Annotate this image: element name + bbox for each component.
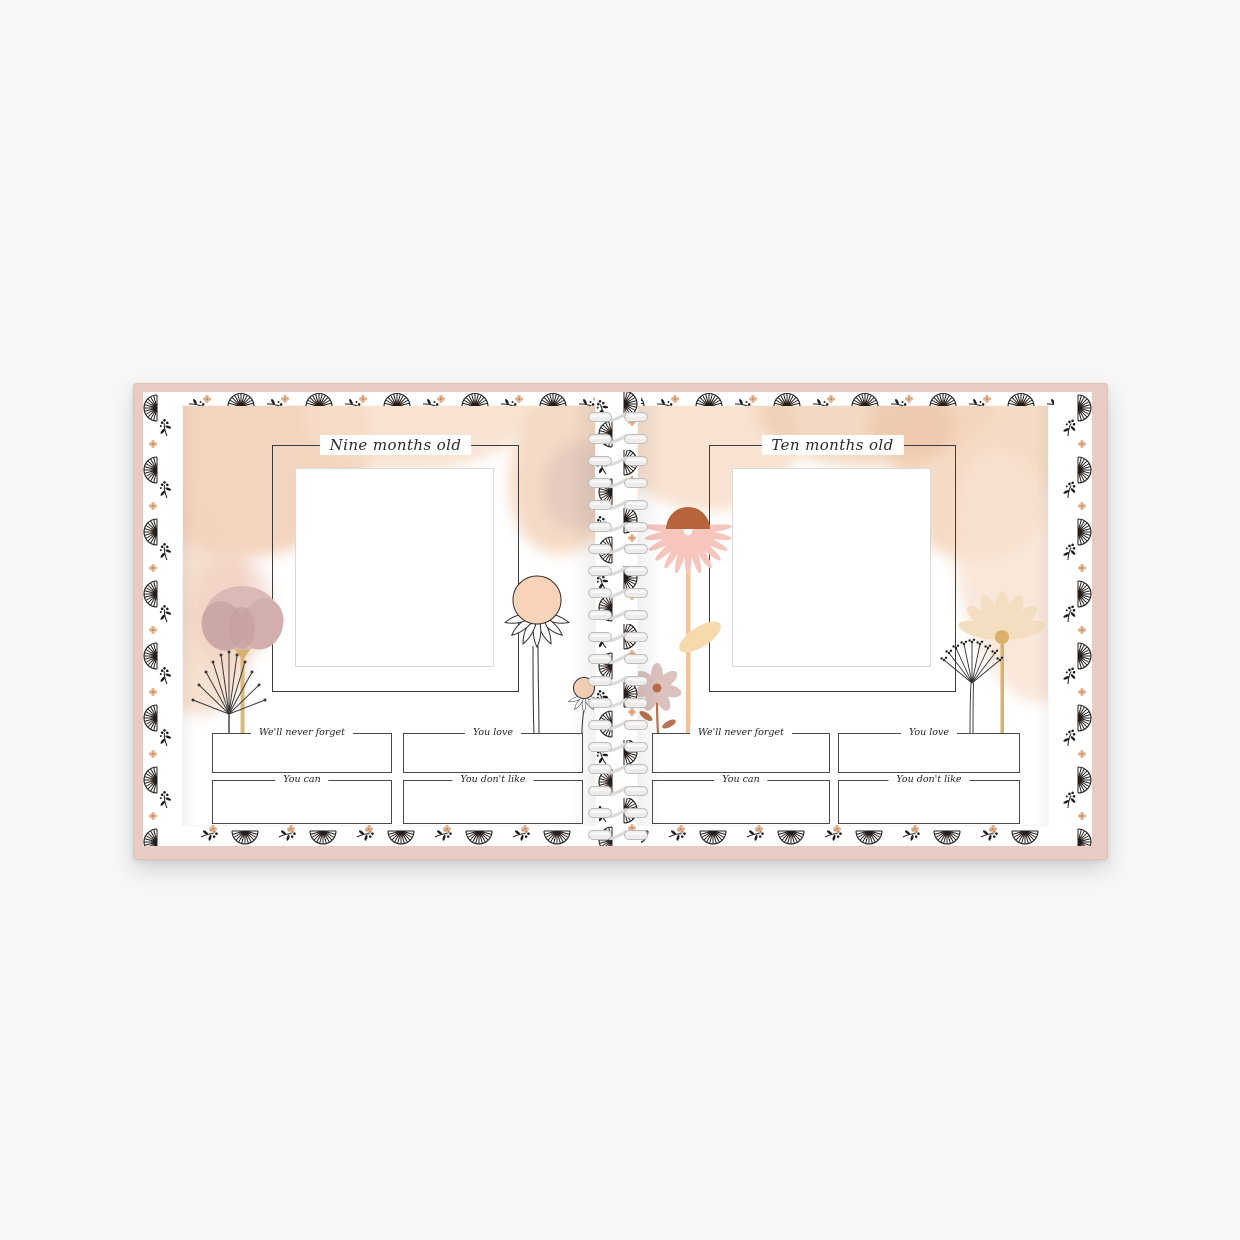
memory-book: Nine months old We'll never forget You l… [133, 383, 1108, 860]
floral-border-left [143, 392, 181, 846]
field-label: You love [465, 726, 521, 740]
photo-placeholder [295, 468, 494, 667]
field-label: We'll never forget [251, 726, 353, 740]
memory-field-box: You love [838, 733, 1020, 773]
page-right: Ten months old We'll never forget You lo… [638, 406, 1048, 825]
mauve-daisy-illustration [638, 656, 713, 733]
memory-field-box: You don't like [403, 780, 583, 824]
memory-field-box: You can [652, 780, 830, 824]
page-title: Ten months old [761, 435, 903, 455]
field-label: We'll never forget [690, 726, 792, 740]
field-label: You love [901, 726, 957, 740]
cream-daisy-and-queen-annes-lace-illustration [938, 566, 1048, 733]
memory-field-box: You don't like [838, 780, 1020, 824]
outlined-coneflower-illustration [478, 566, 595, 733]
page-title: Nine months old [320, 435, 472, 455]
field-label: You don't like [452, 773, 533, 787]
mauve-poppy-and-dandelion-illustration [183, 556, 313, 733]
page-left: Nine months old We'll never forget You l… [183, 406, 595, 825]
field-label: You can [275, 773, 328, 787]
memory-field-box: You love [403, 733, 583, 773]
memory-field-box: We'll never forget [652, 733, 830, 773]
field-label: You can [714, 773, 767, 787]
memory-field-box: We'll never forget [212, 733, 392, 773]
memory-field-box: You can [212, 780, 392, 824]
field-label: You don't like [888, 773, 969, 787]
product-photo-stage: Nine months old We'll never forget You l… [0, 0, 1240, 1240]
spiral-binding-coils [588, 407, 648, 843]
floral-border-right [1054, 392, 1092, 846]
